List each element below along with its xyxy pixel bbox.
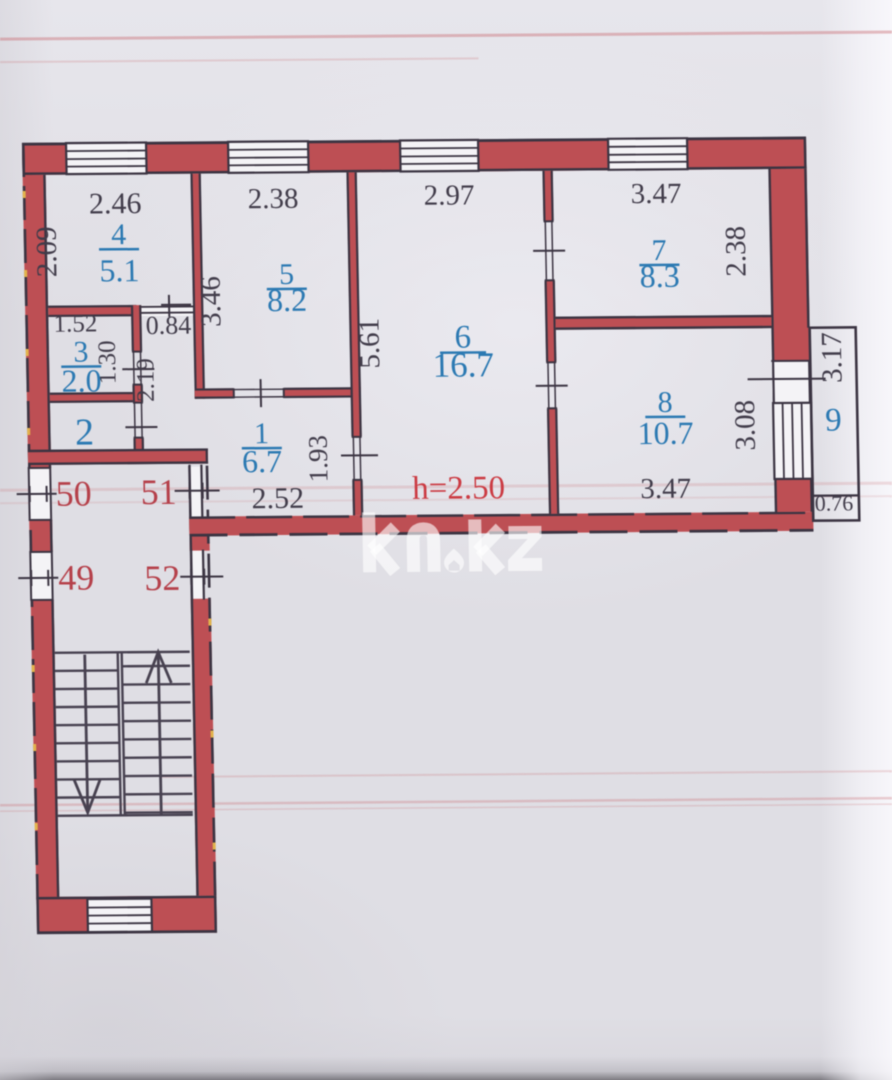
- svg-text:3.46: 3.46: [195, 276, 228, 327]
- svg-text:1.52: 1.52: [53, 310, 97, 337]
- svg-text:1.93: 1.93: [303, 435, 334, 482]
- svg-text:2.46: 2.46: [89, 187, 142, 220]
- svg-text:h=2.50: h=2.50: [412, 470, 506, 507]
- svg-text:3.17: 3.17: [816, 332, 849, 383]
- svg-text:49: 49: [58, 557, 95, 597]
- svg-text:2.38: 2.38: [720, 226, 753, 277]
- svg-text:3.47: 3.47: [640, 473, 691, 505]
- svg-text:50: 50: [55, 474, 92, 514]
- svg-text:2.38: 2.38: [247, 183, 298, 215]
- svg-text:6.7: 6.7: [242, 443, 283, 479]
- svg-text:8.3: 8.3: [639, 258, 680, 294]
- svg-text:2: 2: [75, 411, 95, 453]
- svg-text:3.47: 3.47: [630, 178, 681, 210]
- svg-text:4: 4: [111, 218, 127, 251]
- svg-text:5.61: 5.61: [353, 318, 386, 369]
- svg-text:2.97: 2.97: [423, 179, 474, 211]
- svg-text:2.19: 2.19: [132, 358, 160, 402]
- svg-text:3.08: 3.08: [729, 400, 762, 451]
- svg-text:16.7: 16.7: [432, 345, 494, 384]
- svg-text:10.7: 10.7: [637, 415, 694, 451]
- svg-text:2.09: 2.09: [31, 226, 64, 277]
- svg-text:51: 51: [140, 472, 177, 512]
- svg-text:9: 9: [825, 402, 842, 438]
- svg-text:0.84: 0.84: [145, 311, 191, 340]
- svg-text:8.2: 8.2: [267, 282, 308, 318]
- svg-text:2.0: 2.0: [61, 362, 102, 398]
- svg-text:2.52: 2.52: [251, 482, 304, 515]
- svg-text:0.76: 0.76: [814, 490, 853, 515]
- svg-text:52: 52: [144, 558, 181, 598]
- svg-text:5.1: 5.1: [99, 252, 140, 288]
